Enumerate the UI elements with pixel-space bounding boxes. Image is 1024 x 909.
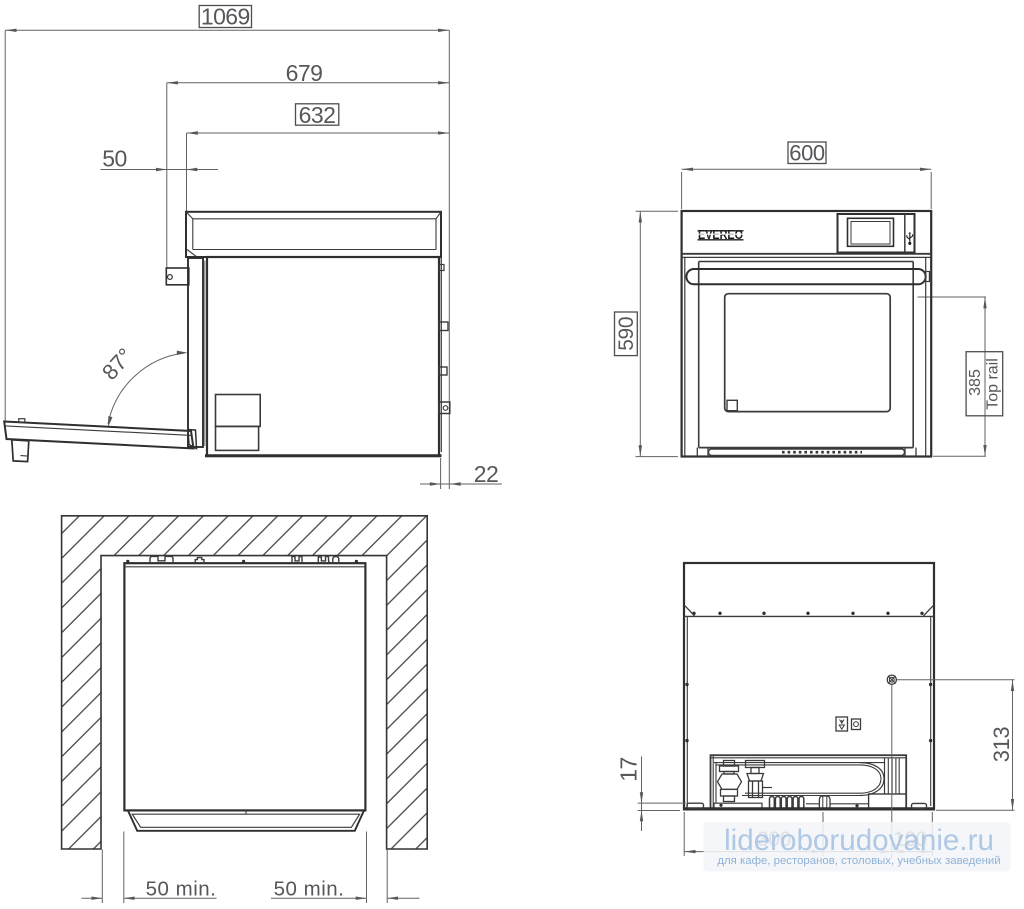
svg-text:lideroborudovanie.ru: lideroborudovanie.ru	[724, 824, 994, 857]
svg-text:385: 385	[967, 369, 984, 396]
svg-text:17: 17	[616, 757, 642, 782]
svg-text:50: 50	[102, 146, 127, 172]
svg-text:600: 600	[789, 141, 825, 166]
svg-text:Top rail: Top rail	[985, 358, 1002, 410]
svg-text:679: 679	[286, 60, 323, 86]
svg-text:50 min.: 50 min.	[146, 878, 217, 901]
svg-text:22: 22	[474, 461, 499, 487]
svg-text:590: 590	[615, 317, 638, 351]
svg-text:313: 313	[989, 727, 1014, 763]
svg-text:50 min.: 50 min.	[274, 878, 345, 901]
svg-text:для кафе, ресторанов, столовых: для кафе, ресторанов, столовых, учебных …	[717, 855, 1000, 867]
svg-text:632: 632	[299, 102, 336, 128]
svg-text:1069: 1069	[201, 4, 250, 30]
